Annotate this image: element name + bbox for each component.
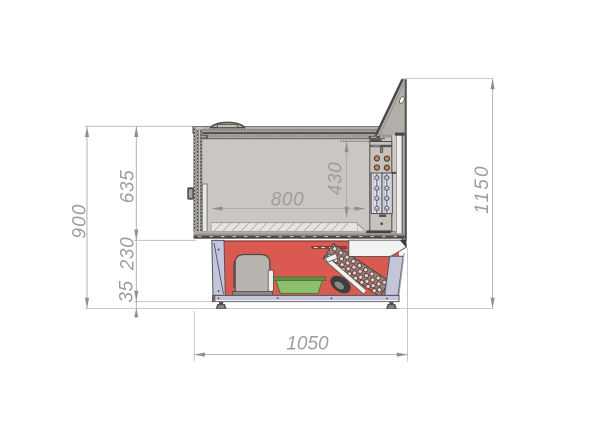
svg-text:1150: 1150 xyxy=(472,164,493,214)
svg-text:430: 430 xyxy=(326,162,347,196)
svg-text:635: 635 xyxy=(118,170,139,204)
svg-text:230: 230 xyxy=(118,237,139,272)
svg-text:35: 35 xyxy=(117,280,138,302)
svg-text:800: 800 xyxy=(271,190,305,211)
svg-text:1050: 1050 xyxy=(286,334,329,355)
svg-text:900: 900 xyxy=(70,203,91,238)
